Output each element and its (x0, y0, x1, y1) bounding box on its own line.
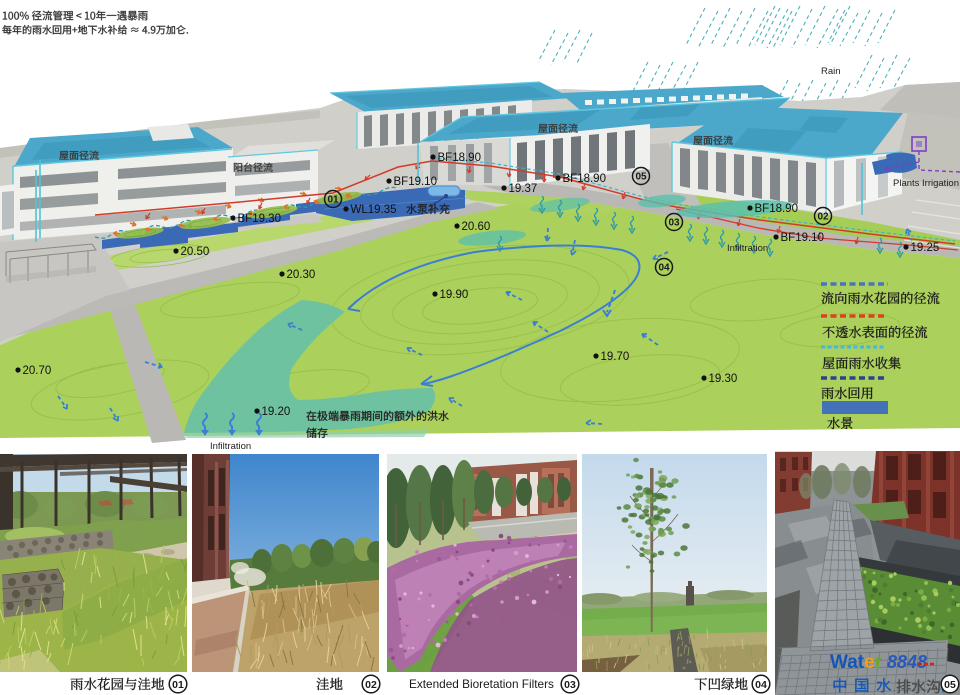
svg-text:BF19.10: BF19.10 (781, 232, 824, 244)
svg-text:BF18.90: BF18.90 (563, 173, 606, 185)
svg-text:20.50: 20.50 (181, 246, 210, 258)
svg-text:BF19.10: BF19.10 (394, 176, 437, 188)
svg-text:20.30: 20.30 (287, 269, 316, 281)
svg-text:WL19.35: WL19.35 (351, 204, 397, 216)
svg-text:19.25: 19.25 (911, 242, 940, 254)
svg-text:Infiltration: Infiltration (727, 243, 768, 254)
svg-text:BF18.90: BF18.90 (438, 152, 481, 164)
svg-text:20.60: 20.60 (462, 221, 491, 233)
svg-text:8848: 8848 (887, 652, 927, 672)
svg-text:04: 04 (755, 679, 767, 691)
svg-text:19.70: 19.70 (601, 351, 630, 363)
svg-text:19.37: 19.37 (509, 183, 538, 195)
svg-text:19.20: 19.20 (262, 406, 291, 418)
svg-text:05: 05 (944, 679, 956, 691)
svg-text:03: 03 (564, 679, 576, 691)
svg-text:BF19.30: BF19.30 (238, 213, 281, 225)
svg-text:05: 05 (635, 172, 647, 183)
svg-text:01: 01 (172, 679, 184, 691)
svg-text:01: 01 (327, 195, 339, 206)
svg-text:Extended Bioretation Filters: Extended Bioretation Filters (409, 677, 554, 691)
svg-text:03: 03 (668, 218, 680, 229)
svg-text:02: 02 (817, 212, 829, 223)
svg-text:Infiltration: Infiltration (210, 441, 251, 452)
svg-text:19.30: 19.30 (709, 373, 738, 385)
svg-text:20.70: 20.70 (23, 365, 52, 377)
svg-text:02: 02 (365, 679, 377, 691)
svg-text:Rain: Rain (821, 66, 841, 77)
svg-text:04: 04 (658, 263, 670, 274)
svg-text:Plants Irrigation: Plants Irrigation (893, 178, 959, 189)
svg-text:Water: Water (830, 652, 883, 673)
svg-text:19.90: 19.90 (440, 289, 469, 301)
svg-text:BF18.90: BF18.90 (755, 203, 798, 215)
